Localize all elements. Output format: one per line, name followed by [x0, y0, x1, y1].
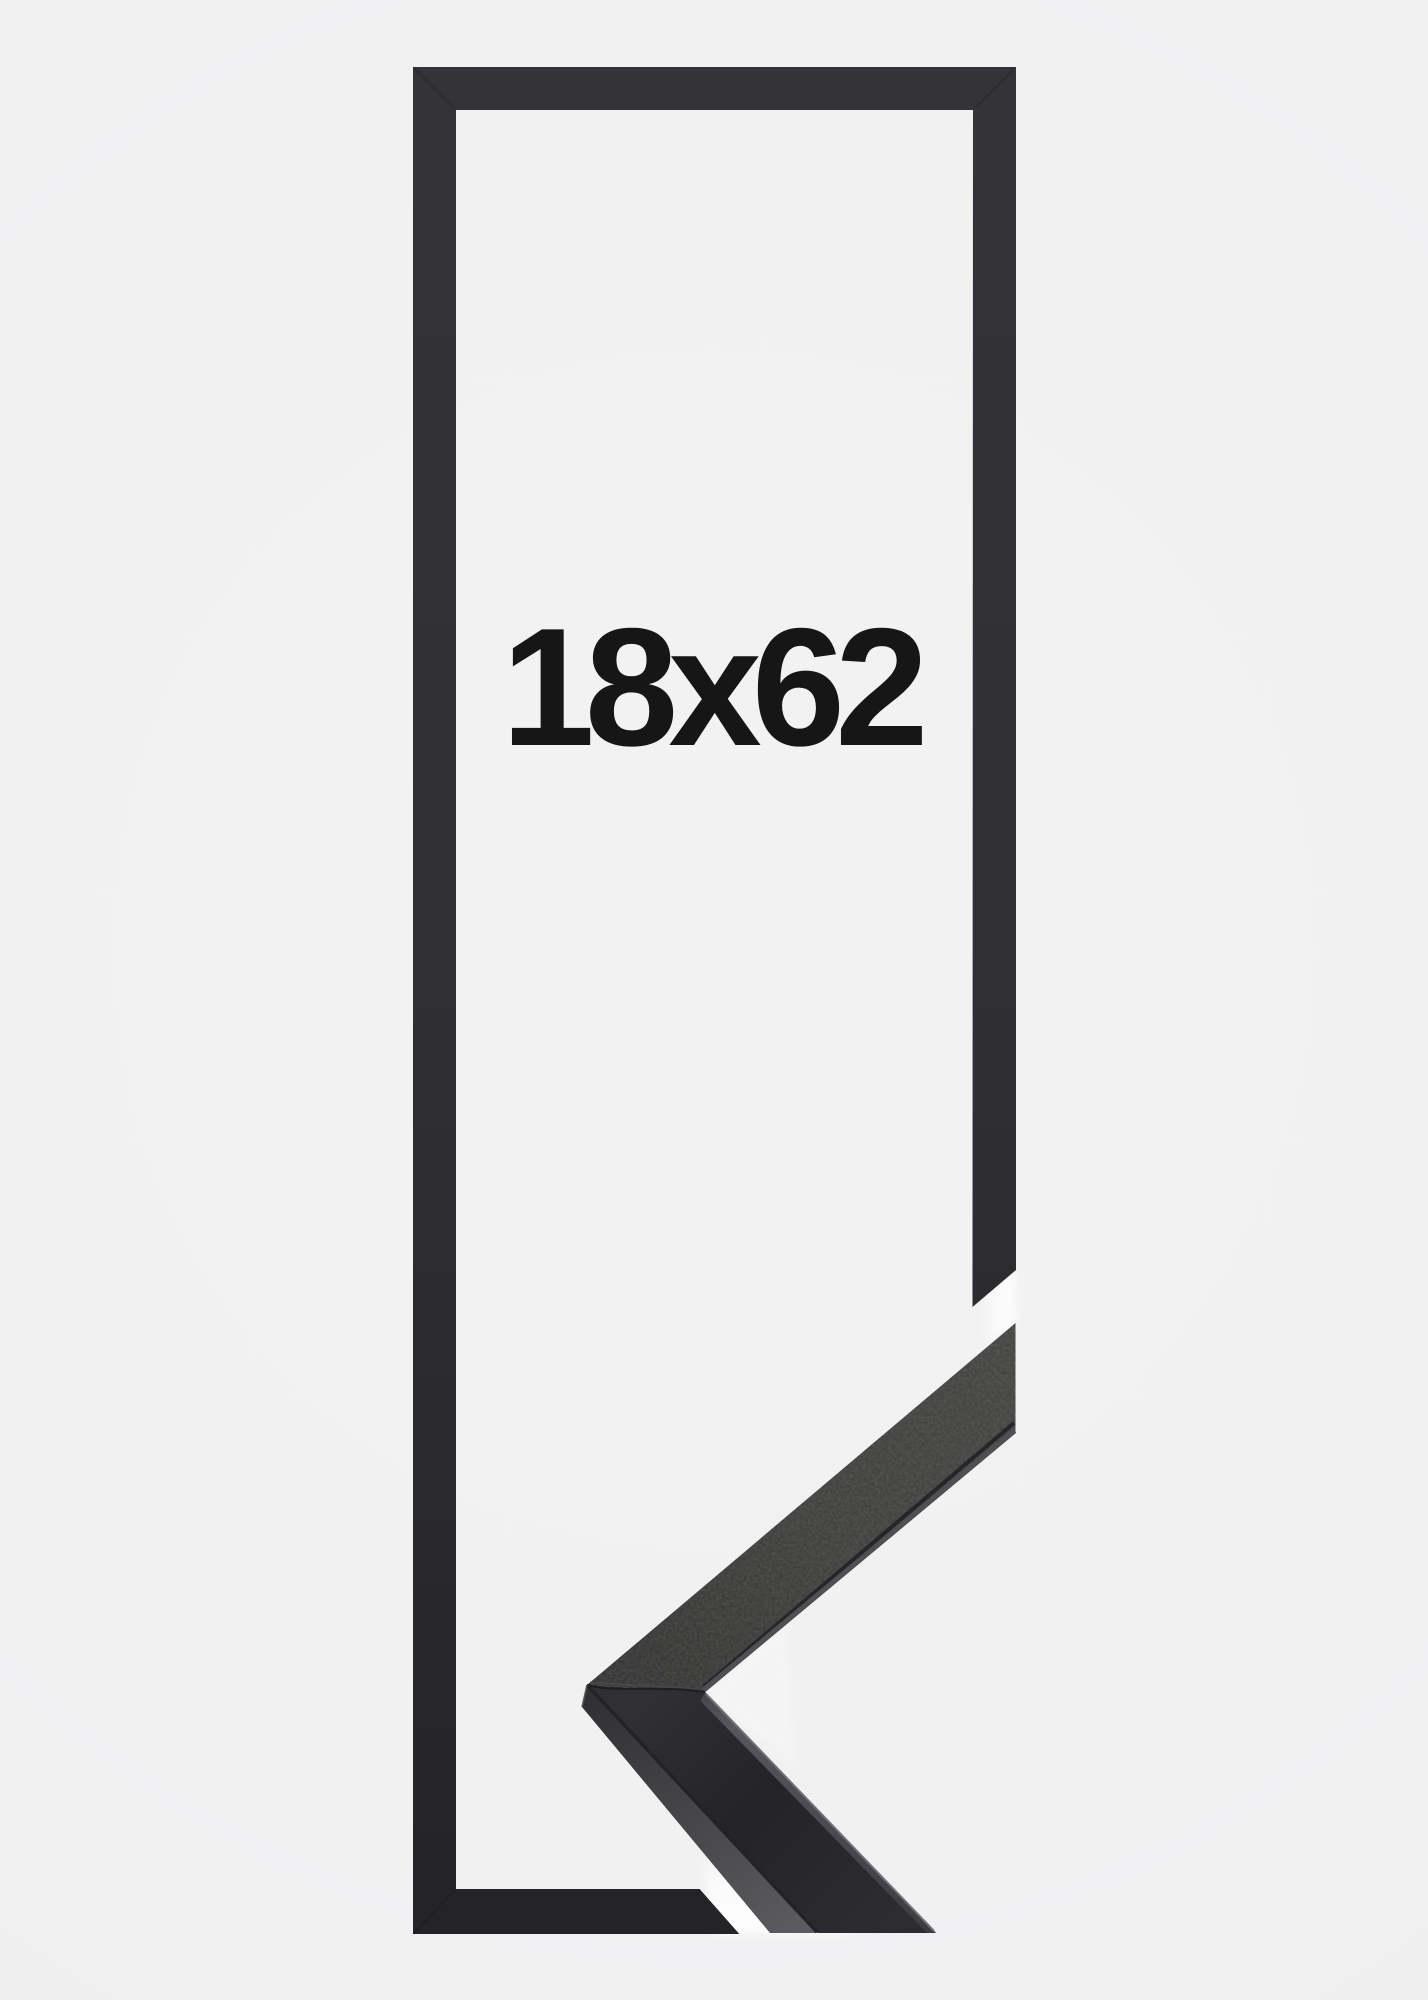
svg-text:18x62: 18x62	[501, 593, 922, 781]
